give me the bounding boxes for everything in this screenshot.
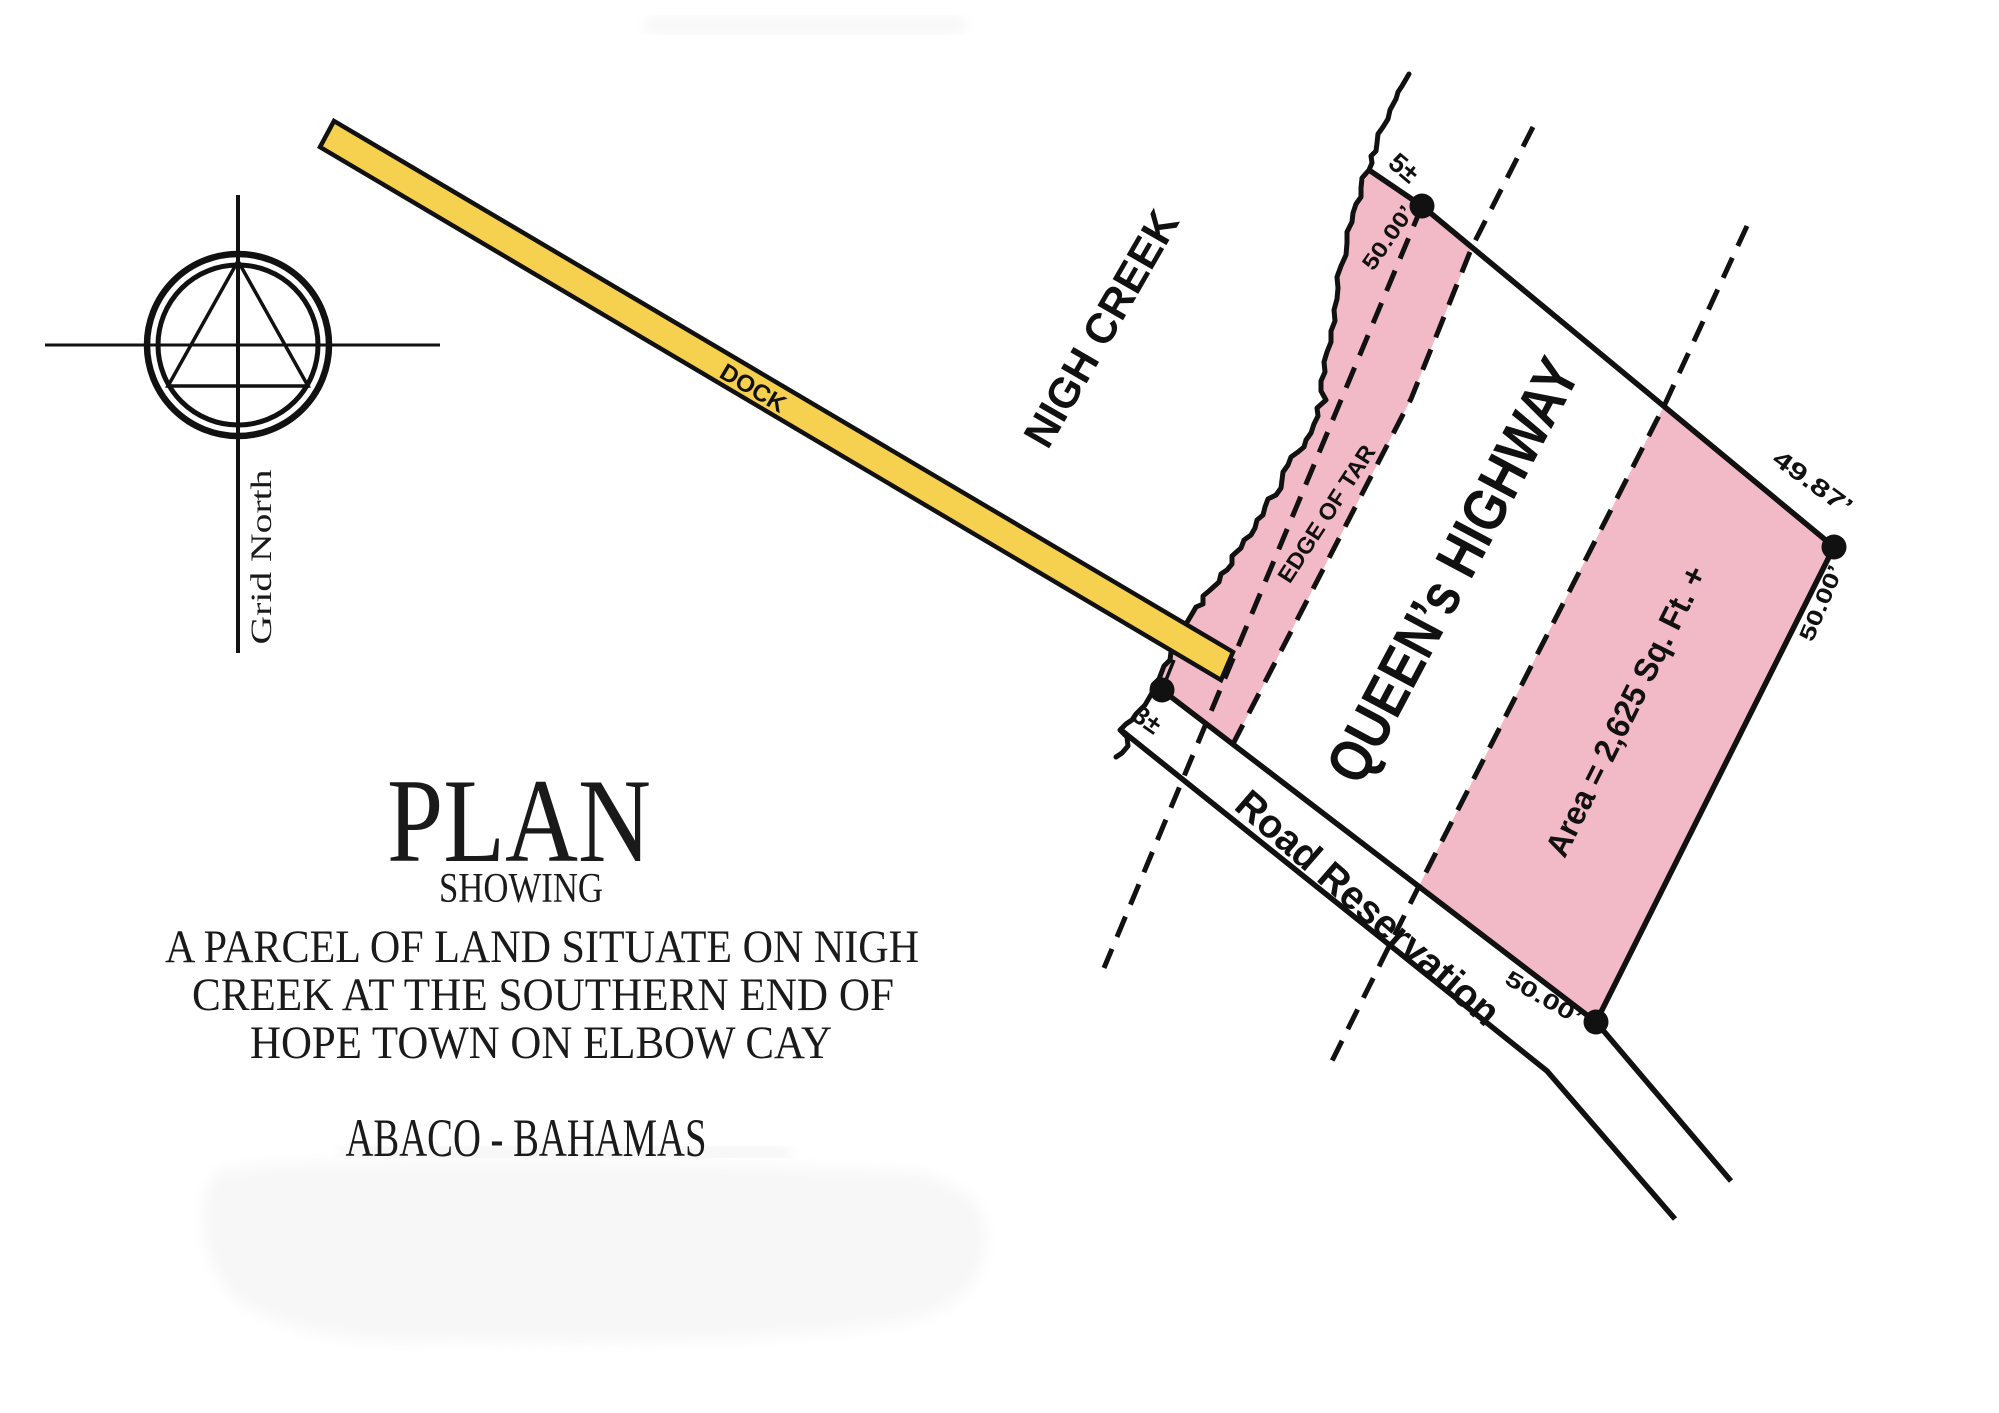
svg-text:CREEK AT THE SOUTHERN END OF: CREEK AT THE SOUTHERN END OF [192,969,894,1021]
svg-text:NIGH CREEK: NIGH CREEK [1015,202,1189,455]
svg-text:3±: 3± [1127,699,1168,740]
svg-text:A PARCEL OF LAND SITUATE ON NI: A PARCEL OF LAND SITUATE ON NIGH [165,921,919,973]
svg-text:Grid North: Grid North [245,470,278,645]
svg-text:SHOWING: SHOWING [439,866,603,912]
svg-text:ABACO - BAHAMAS: ABACO - BAHAMAS [346,1108,707,1168]
svg-text:HOPE TOWN ON ELBOW CAY: HOPE TOWN ON ELBOW CAY [250,1017,832,1069]
